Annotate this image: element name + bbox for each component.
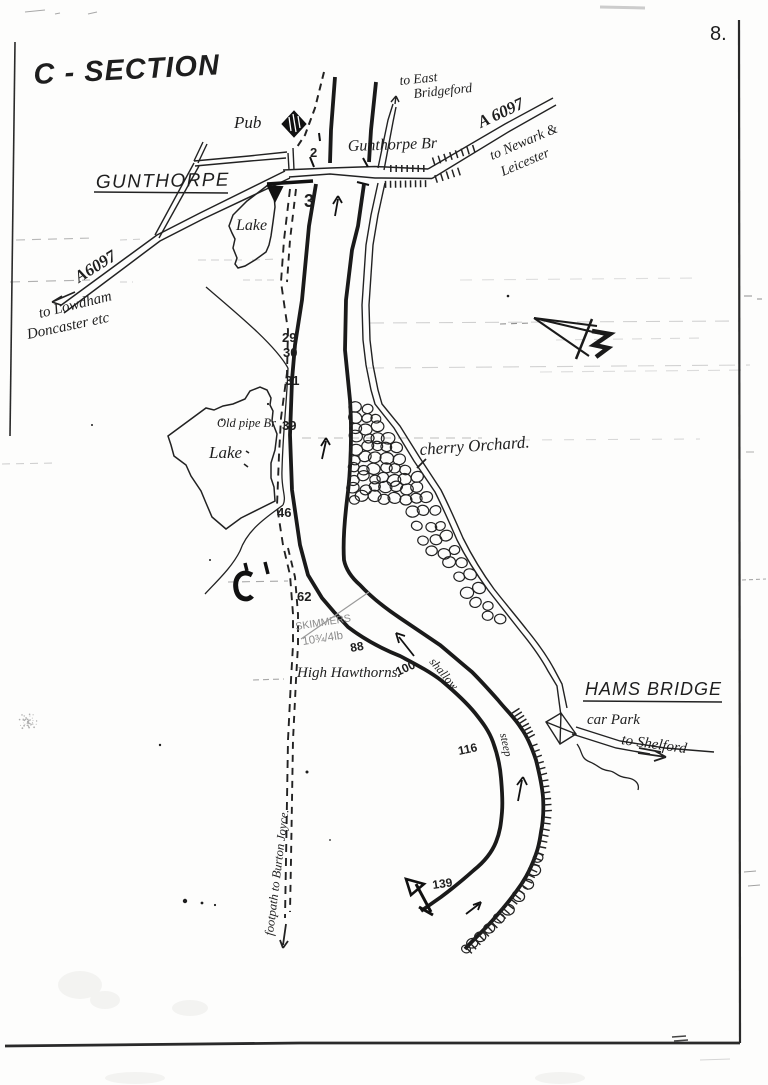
svg-text:29: 29: [282, 330, 296, 345]
svg-text:88: 88: [349, 639, 365, 655]
svg-text:Pub: Pub: [233, 113, 261, 132]
svg-text:30: 30: [283, 345, 297, 360]
svg-text:46: 46: [277, 505, 291, 520]
svg-text:Lake: Lake: [235, 217, 267, 234]
svg-text:Gunthorpe Br: Gunthorpe Br: [348, 135, 439, 155]
svg-text:139: 139: [431, 875, 453, 892]
svg-text:Old pipe Br: Old pipe Br: [217, 416, 276, 430]
svg-text:High Hawthorns.: High Hawthorns.: [296, 665, 401, 681]
svg-text:car Park: car Park: [587, 712, 640, 728]
svg-text:HAMS BRIDGE: HAMS BRIDGE: [585, 679, 722, 699]
svg-text:Lake: Lake: [208, 443, 243, 462]
svg-text:8.: 8.: [710, 23, 727, 45]
svg-text:31: 31: [285, 373, 299, 388]
svg-text:2: 2: [310, 145, 317, 160]
svg-text:GUNTHORPE: GUNTHORPE: [96, 170, 230, 193]
svg-text:62: 62: [297, 589, 311, 604]
